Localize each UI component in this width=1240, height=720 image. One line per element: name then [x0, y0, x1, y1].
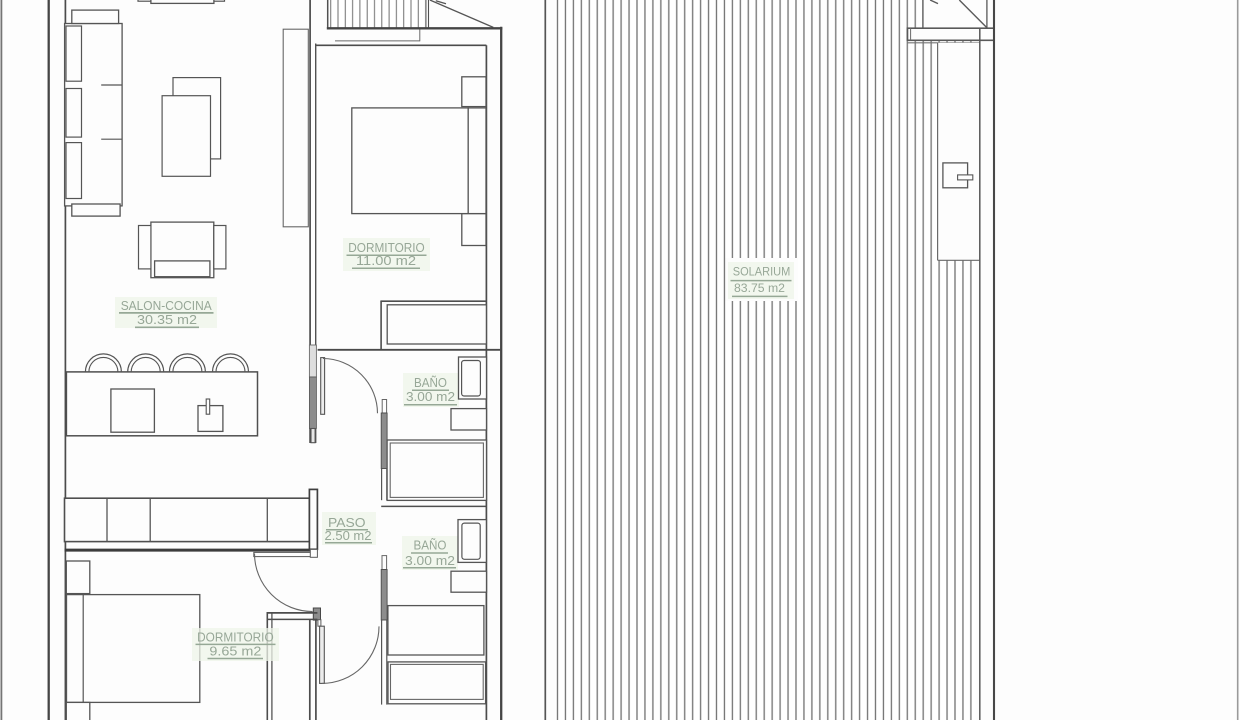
svg-text:30.35 m2: 30.35 m2 — [137, 312, 197, 327]
svg-text:83.75 m2: 83.75 m2 — [734, 281, 785, 295]
svg-text:9.65 m2: 9.65 m2 — [209, 644, 261, 659]
svg-text:11.00 m2: 11.00 m2 — [356, 253, 416, 268]
svg-text:BAÑO: BAÑO — [414, 537, 447, 552]
svg-text:SALON-COCINA: SALON-COCINA — [121, 298, 212, 313]
svg-text:DORMITORIO: DORMITORIO — [197, 630, 274, 645]
svg-text:SOLARIUM: SOLARIUM — [733, 264, 791, 278]
svg-text:2.50 m2: 2.50 m2 — [325, 528, 372, 543]
svg-text:3.00 m2: 3.00 m2 — [405, 553, 455, 568]
svg-text:BAÑO: BAÑO — [414, 375, 447, 390]
svg-text:3.00 m2: 3.00 m2 — [406, 389, 455, 404]
